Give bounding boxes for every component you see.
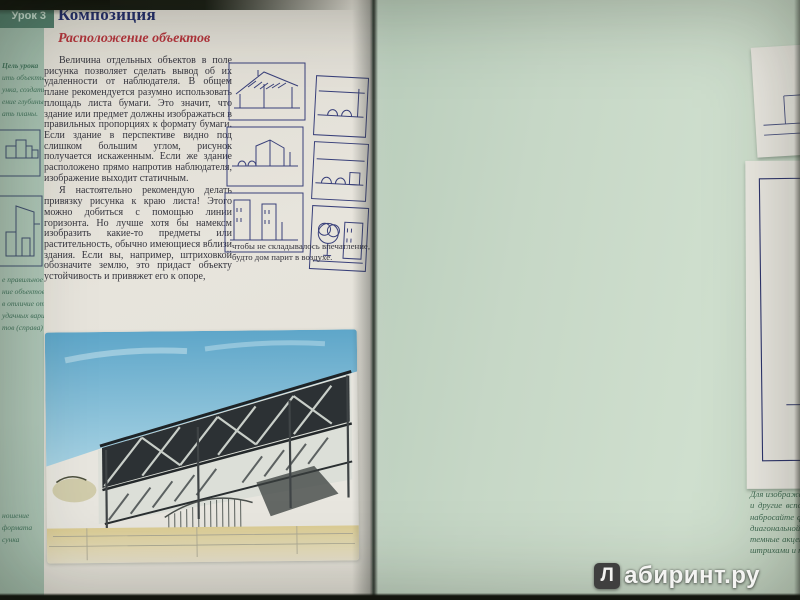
book-photo: Цель урока ить объекты унка, создать ени… [0, 0, 800, 600]
caption-line: формата [2, 522, 44, 534]
thumbnail-tree-buildings [308, 205, 369, 274]
main-drawing-panel [745, 159, 800, 489]
left-page: Цель урока ить объекты унка, создать ени… [0, 0, 372, 600]
goal-heading: Цель урока [2, 60, 44, 72]
caption-line: ние объектов [2, 286, 44, 298]
page-title: Композиция [58, 5, 156, 25]
labirint-logo-icon: Л [594, 563, 620, 589]
step-sketch-1 [751, 40, 800, 157]
thumbnail-arches-2 [310, 141, 369, 204]
left-sidebar: Цель урока ить объекты унка, создать ени… [0, 0, 44, 600]
sidebar-sketch-2 [0, 192, 44, 272]
section-subtitle: Расположение объектов [58, 31, 210, 47]
thumbnail-caption: чтобы не складывалось впечатление, будто… [232, 241, 380, 263]
goal-line: ение глубины, [2, 96, 44, 108]
body-text: Величина отдельных объектов в поле рисун… [44, 56, 232, 285]
sidebar-figure-caption: е правильное ние объектов в отличие от у… [2, 274, 44, 334]
goal-line: ать планы. [2, 108, 44, 120]
right-page: Для изображения ряда домов на набережной… [372, 0, 800, 600]
drawing-caption: Для изображения ряда домов на набережной… [750, 489, 800, 557]
thumbnail-arches-1 [312, 75, 369, 140]
watercolor-image [45, 329, 359, 563]
sidebar-sketch-1 [0, 122, 44, 186]
caption-line: тов (справа) [2, 322, 44, 334]
goal-line: унка, создать [2, 84, 44, 96]
sidebar-goal-caption: Цель урока ить объекты унка, создать ени… [2, 60, 44, 120]
thumbnail-house-front [226, 126, 304, 188]
venice-drawing [745, 159, 800, 489]
lesson-tab: Урок 3 [0, 4, 54, 28]
caption-line: сунка [2, 534, 44, 546]
goal-line: ить объекты [2, 72, 44, 84]
caption-line: е правильное [2, 274, 44, 286]
watercolor-study [45, 329, 359, 563]
labirint-watermark: Л абиринт.ру [594, 562, 760, 590]
caption-line: удачных вари- [2, 310, 44, 322]
step-panel-layout-lines [751, 40, 800, 157]
sidebar-bottom-caption: ношение формата сунка [2, 510, 44, 546]
caption-line: ношение [2, 510, 44, 522]
paragraph-1: Величина отдельных объектов в поле рисун… [44, 56, 232, 184]
watermark-text: абиринт.ру [624, 562, 760, 590]
caption-line: в отличие от [2, 298, 44, 310]
paragraph-2: Я настоятельно рекомендую делать привязк… [44, 186, 232, 282]
thumbnail-house-perspective [228, 62, 306, 122]
